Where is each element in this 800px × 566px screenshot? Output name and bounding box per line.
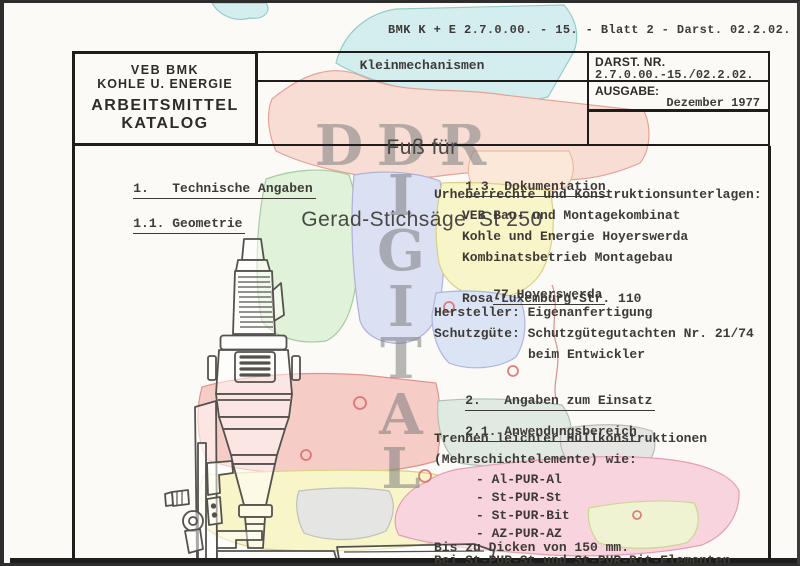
catalog-scan-page: D D R I G I T A L	[0, 0, 800, 566]
ausgabe-value: Dezember 1977	[589, 96, 768, 110]
catalog-title-line1: ARBEITSMITTEL	[75, 97, 255, 115]
org-box: VEB BMK KOHLE U. ENERGIE ARBEITSMITTEL K…	[72, 51, 258, 146]
doc-intro-line: Urheberrechte und Konstruktionsunterlage…	[434, 187, 762, 203]
watermark-letter: L	[381, 441, 420, 497]
section-1-1-heading: 1.1. Geometrie	[102, 200, 245, 250]
content-left-border	[72, 146, 75, 559]
watermark-letter: T	[380, 331, 422, 387]
catalog-title-line2: KATALOG	[75, 115, 255, 133]
hersteller-line: Hersteller: Eigenanfertigung	[434, 305, 652, 321]
doc-org-line: Kohle und Energie Hoyerswerda	[462, 229, 688, 245]
darst-label: DARST. NR.	[589, 53, 768, 69]
org-name-line2: KOHLE U. ENERGIE	[75, 77, 255, 91]
element-note: Bei St-PUR-St und St-PUR-Bit-Elementen	[434, 553, 730, 566]
ausgabe-cell: AUSGABE: Dezember 1977	[587, 80, 770, 112]
category-cell: Kleinmechanismen	[255, 51, 589, 82]
content-right-border	[768, 146, 771, 559]
doc-org-line: VEB Bau- und Montagekombinat	[462, 208, 680, 224]
org-name-line1: VEB BMK	[75, 63, 255, 77]
material-item: - St-PUR-Bit	[476, 508, 570, 524]
usage-line2: (Mehrschichtelemente) wie:	[434, 452, 637, 468]
material-item: - St-PUR-St	[476, 490, 562, 506]
section-1-heading-text: 1. Technische Angaben	[133, 181, 315, 200]
usage-line1: Trennen leichter Hüllkonstruktionen	[434, 431, 707, 447]
schutzguete-line1: Schutzgüte: Schutzgütegutachten Nr. 21/7…	[434, 326, 754, 342]
category-label: Kleinmechanismen	[257, 53, 587, 74]
sheet-title-line1: Fuß für	[257, 136, 587, 160]
sheet-reference-line: BMK K + E 2.7.0.00. - 15. - Blatt 2 - Da…	[388, 23, 791, 37]
watermark-letter: A	[379, 387, 422, 443]
section-1-1-heading-text: 1.1. Geometrie	[133, 216, 245, 235]
doc-org-line: Kombinatsbetrieb Montagebau	[462, 250, 673, 266]
material-item: - Al-PUR-Al	[476, 472, 562, 488]
schutzguete-line2: beim Entwickler	[528, 347, 645, 363]
empty-header-cell	[587, 109, 770, 146]
sheet-title-cell: Fuß für Gerad-Stichsäge St 250	[255, 80, 589, 147]
darst-cell: DARST. NR. 2.7.0.00.-15./02.2.02.	[587, 51, 770, 82]
